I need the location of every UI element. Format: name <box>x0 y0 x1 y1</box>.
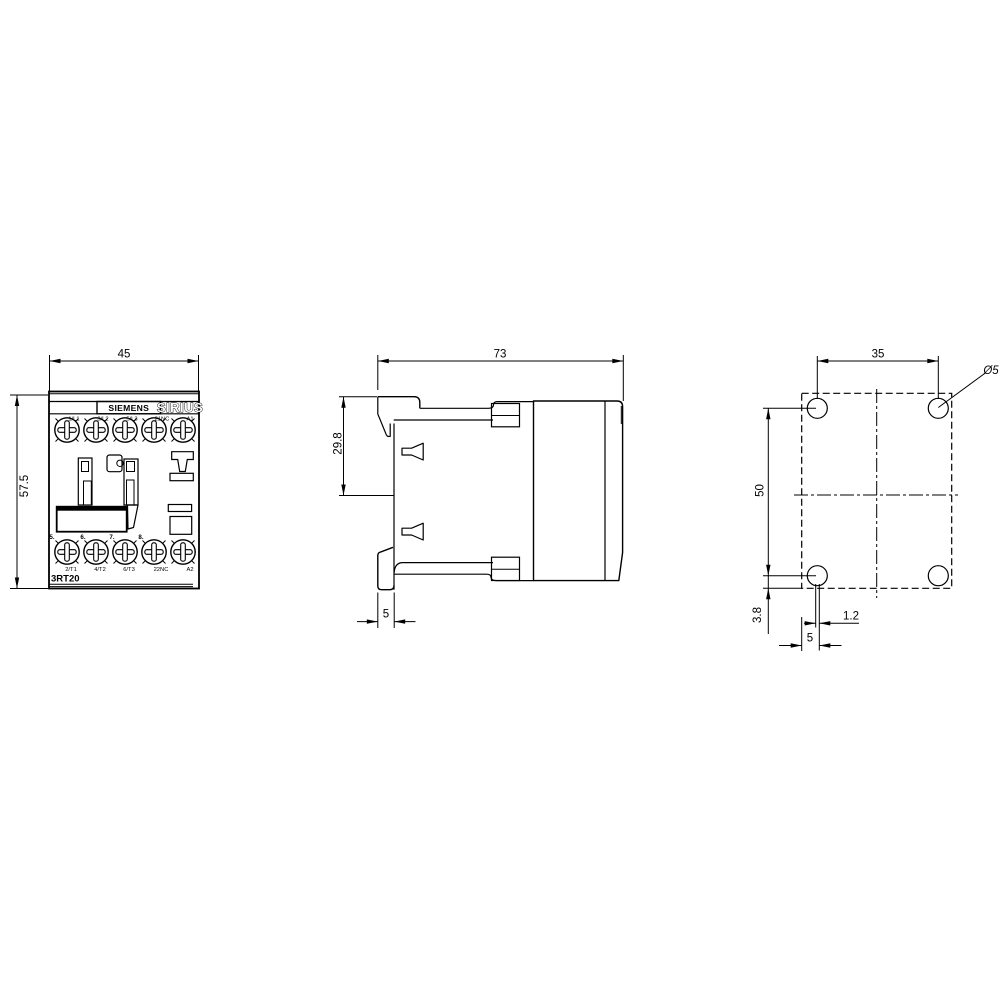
side-dim-rail-offset: 29.8 <box>333 397 394 496</box>
terminal-label: A2 <box>186 567 193 573</box>
dim-width-value: 45 <box>118 349 131 361</box>
manual-actuator <box>107 455 122 472</box>
terminal-screw <box>84 540 108 564</box>
terminal-label: 22NC <box>154 567 169 573</box>
rail-peg-top <box>402 443 423 460</box>
aux-slot-upper <box>170 473 193 480</box>
latch-right-slot <box>127 462 135 472</box>
series-label: SIRIUS <box>157 400 203 415</box>
arrow-left <box>367 619 378 623</box>
terminal-labels-bottom: 2/T1 4/T2 6/T3 22NC A2 <box>65 567 193 573</box>
dim-hspacing-value: 35 <box>872 349 885 361</box>
terminal-label: 4/T2 <box>94 567 106 573</box>
terminal-label: 21NC <box>155 417 170 423</box>
arrow-right <box>188 359 199 363</box>
arrow-top <box>341 397 345 408</box>
arrow-right <box>394 619 405 623</box>
side-dim-depth: 73 <box>378 349 624 402</box>
terminal-screw <box>171 540 195 564</box>
dim-depth-value: 73 <box>494 349 507 361</box>
position-marker: 7. <box>109 534 114 541</box>
terminal-label: 5/L3 <box>126 417 137 423</box>
bottom-strip-lines <box>49 584 193 586</box>
brand-label: SIEMENS <box>108 403 149 413</box>
terminal-label: 3/L2 <box>97 417 108 423</box>
arrow-left <box>50 359 61 363</box>
side-view: 73 29.8 <box>333 349 624 629</box>
mount-dim-bottom-offset: 3.8 <box>752 576 802 634</box>
arrow-right <box>819 643 830 647</box>
front-dim-height: 57.5 <box>10 395 48 589</box>
arrow-left <box>817 359 828 363</box>
arrow-top <box>766 408 770 419</box>
latch-left-slot <box>82 462 89 472</box>
arrow-up <box>766 588 770 599</box>
position-marker: 6. <box>80 534 85 541</box>
terminal-label: 6/T3 <box>123 567 135 573</box>
aux-slot-lower <box>168 505 191 512</box>
terminal-label: 2/T1 <box>65 567 77 573</box>
latch-right-lower <box>127 480 135 505</box>
dim-rail-value: 29.8 <box>333 432 345 454</box>
aux-slot-t <box>172 452 194 472</box>
position-marker: 5. <box>49 534 54 541</box>
leader-line <box>938 373 986 408</box>
mount-dim-hspacing: 35 <box>817 349 938 400</box>
side-dim-foot: 5 <box>357 593 416 629</box>
extension-lines <box>763 408 816 575</box>
drawing-canvas: 45 57.5 SIEMENS SIRIUS <box>0 0 1000 1000</box>
front-body: SIEMENS SIRIUS 1/L1 3/L2 5/L3 21NC A1 <box>49 392 203 589</box>
terminal-label: A1 <box>186 417 193 423</box>
arrow-left <box>805 621 816 625</box>
arrow-bottom <box>341 485 345 496</box>
mount-dim-edge-offset: 5 <box>779 617 842 651</box>
din-clip-upper <box>378 397 390 437</box>
extension-lines <box>339 397 394 496</box>
rail-peg-bottom <box>402 523 423 540</box>
dim-bottom-offset-value: 3.8 <box>752 607 764 623</box>
mounting-hole <box>928 398 948 418</box>
side-profile <box>378 397 623 590</box>
housing-block <box>534 401 623 581</box>
arrow-bottom <box>766 565 770 576</box>
front-mechanism <box>57 452 194 535</box>
aux-slot-square <box>170 517 192 535</box>
terminal-screw <box>113 540 137 564</box>
din-clip-lower-foot <box>378 547 394 589</box>
arrow-bottom <box>15 578 19 589</box>
model-label: 3RT20 <box>51 574 80 585</box>
dim-vspacing-value: 50 <box>755 484 767 497</box>
arrow-top <box>15 395 19 406</box>
extension-lines <box>817 356 938 399</box>
dim-center-offset-value: 1.2 <box>843 611 859 623</box>
mounting-hole <box>928 566 948 586</box>
extension-lines <box>378 355 624 401</box>
top-plate <box>378 397 420 409</box>
arrow-left <box>378 359 389 363</box>
hole-diameter-callout: Ø5 <box>938 365 999 408</box>
top-arm-upper <box>420 402 534 409</box>
bottom-arm-lower <box>394 574 533 580</box>
dim-edge-offset-value: 5 <box>807 633 813 645</box>
position-marker: 8. <box>138 534 143 541</box>
bottom-arm-upper <box>394 563 493 573</box>
extension-lines <box>816 584 820 651</box>
dimension-drawing-sheet: 45 57.5 SIEMENS SIRIUS <box>0 0 1000 1000</box>
arrow-left <box>791 643 802 647</box>
mount-dim-vspacing: 50 <box>755 408 817 575</box>
latch-left-lower <box>84 481 92 505</box>
front-dim-width: 45 <box>50 349 199 392</box>
terminal-label: 1/L1 <box>68 417 79 423</box>
terminal-screw <box>142 540 166 564</box>
arrow-right <box>927 359 938 363</box>
arrow-right <box>819 621 830 625</box>
hole-diameter-value: Ø5 <box>982 365 999 377</box>
terminal-screw <box>55 540 79 564</box>
latch-right-tail <box>128 505 139 529</box>
terminal-screws-bottom <box>55 540 195 564</box>
mounting-view: 35 Ø5 50 3.8 1.2 <box>752 349 999 652</box>
nameplate-top-bar <box>57 507 127 511</box>
dim-foot-value: 5 <box>383 609 389 621</box>
arrow-right <box>612 359 623 363</box>
front-view: 45 57.5 SIEMENS SIRIUS <box>10 349 203 589</box>
dim-height-value: 57.5 <box>19 475 31 497</box>
